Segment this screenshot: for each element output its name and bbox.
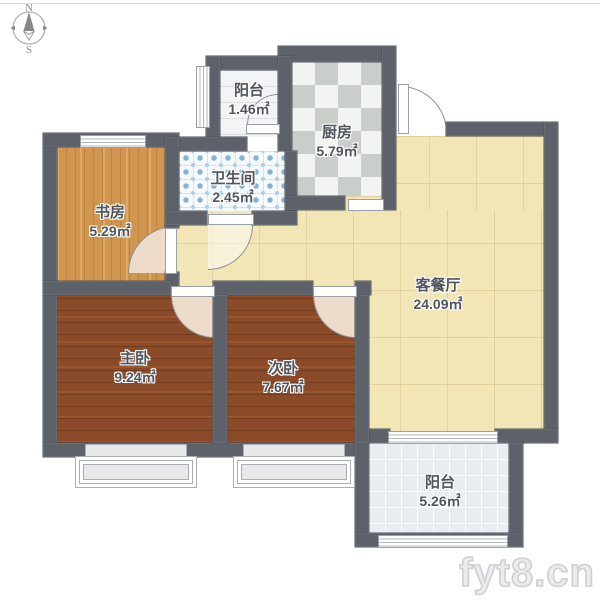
balcony-north-window bbox=[196, 66, 210, 128]
study-window bbox=[80, 135, 146, 148]
study-door-leaf bbox=[165, 228, 177, 274]
bathroom-door-leaf bbox=[208, 214, 254, 225]
wall-kitchen-top bbox=[278, 46, 396, 62]
wall-balcony-south-left bbox=[355, 443, 369, 547]
room-label-bathroom: 卫生间2.45㎡ bbox=[183, 170, 283, 206]
living-balcony-slider bbox=[388, 431, 498, 444]
wall-right-exterior bbox=[544, 122, 558, 443]
svg-text:S: S bbox=[26, 44, 32, 56]
room-label-second-bedroom: 次卧7.67㎡ bbox=[233, 360, 333, 396]
wall-hall-south-middle bbox=[213, 281, 313, 295]
wall-bathroom-bottom-right bbox=[252, 211, 297, 225]
wall-living-top bbox=[446, 122, 558, 136]
wall-living-bottom-right bbox=[495, 429, 558, 443]
wall-bathroom-bottom-left bbox=[165, 211, 207, 225]
balcony-south-window bbox=[378, 535, 508, 548]
compass-icon: N S bbox=[6, 0, 54, 56]
wall-hall-south-right bbox=[355, 281, 371, 295]
living-dining-floor-upper bbox=[382, 136, 558, 210]
floor-plan: 阳台1.46㎡ 厨房5.79㎡ 卫生间2.45㎡ 书房5.29㎡ 客餐厅24.0… bbox=[0, 0, 600, 600]
wall-left-exterior bbox=[43, 133, 57, 457]
second-door-leaf bbox=[313, 286, 357, 297]
wall-balcony-south-right bbox=[509, 443, 523, 547]
master-door-leaf bbox=[171, 286, 215, 297]
wall-bedroom-divider bbox=[213, 295, 227, 443]
top-hairline bbox=[0, 3, 600, 4]
balcony-north-door-leaf bbox=[246, 124, 280, 134]
wall-hall-south-left bbox=[43, 281, 171, 295]
wall-kitchen-bottom bbox=[285, 196, 345, 210]
room-label-living-dining: 客餐厅24.09㎡ bbox=[388, 277, 488, 313]
master-bay-window bbox=[75, 456, 197, 488]
room-label-master-bedroom: 主卧9.24㎡ bbox=[85, 350, 185, 386]
entrance-door-leaf bbox=[398, 84, 409, 134]
watermark-text: fyt8.cn bbox=[459, 551, 595, 596]
room-label-balcony-north: 阳台1.46㎡ bbox=[209, 82, 289, 118]
kitchen-door-leaf bbox=[348, 199, 384, 211]
room-label-kitchen: 厨房5.79㎡ bbox=[297, 124, 377, 160]
room-label-study: 书房5.29㎡ bbox=[60, 204, 160, 240]
second-bay-window bbox=[233, 456, 355, 488]
room-label-balcony-south: 阳台5.26㎡ bbox=[390, 474, 490, 510]
wall-second-living-divider bbox=[355, 295, 369, 443]
wall-kitchen-right bbox=[382, 46, 396, 210]
